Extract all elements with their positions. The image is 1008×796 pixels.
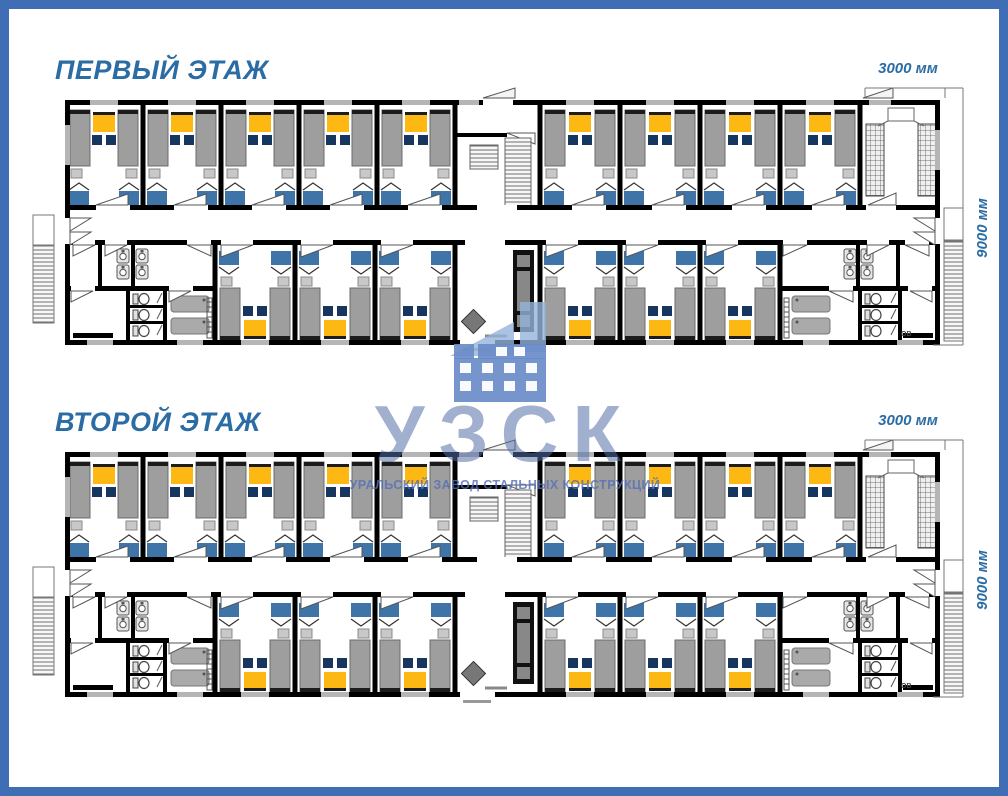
- floor-1-depth-dimension: 9000 мм: [974, 180, 994, 276]
- floor-plan-document: ПЕРВЫЙ ЭТАЖ ВТОРОЙ ЭТАЖ 3000 мм 3000 мм …: [0, 0, 1008, 796]
- floor-1-title: ПЕРВЫЙ ЭТАЖ: [55, 55, 269, 86]
- floor-1-vent-label: ОВ: [901, 331, 912, 338]
- floor-2-depth-dimension: 9000 мм: [974, 532, 994, 628]
- floor-1-width-dimension: 3000 мм: [838, 60, 978, 77]
- floor-2-plan: [33, 440, 963, 703]
- floor-2-width-dimension: 3000 мм: [838, 412, 978, 429]
- floor-2-vent-label: ОВ: [901, 683, 912, 690]
- floor-plans-drawing: [0, 0, 1008, 796]
- floor-2-title: ВТОРОЙ ЭТАЖ: [55, 407, 261, 438]
- floor-1-plan: [33, 88, 963, 351]
